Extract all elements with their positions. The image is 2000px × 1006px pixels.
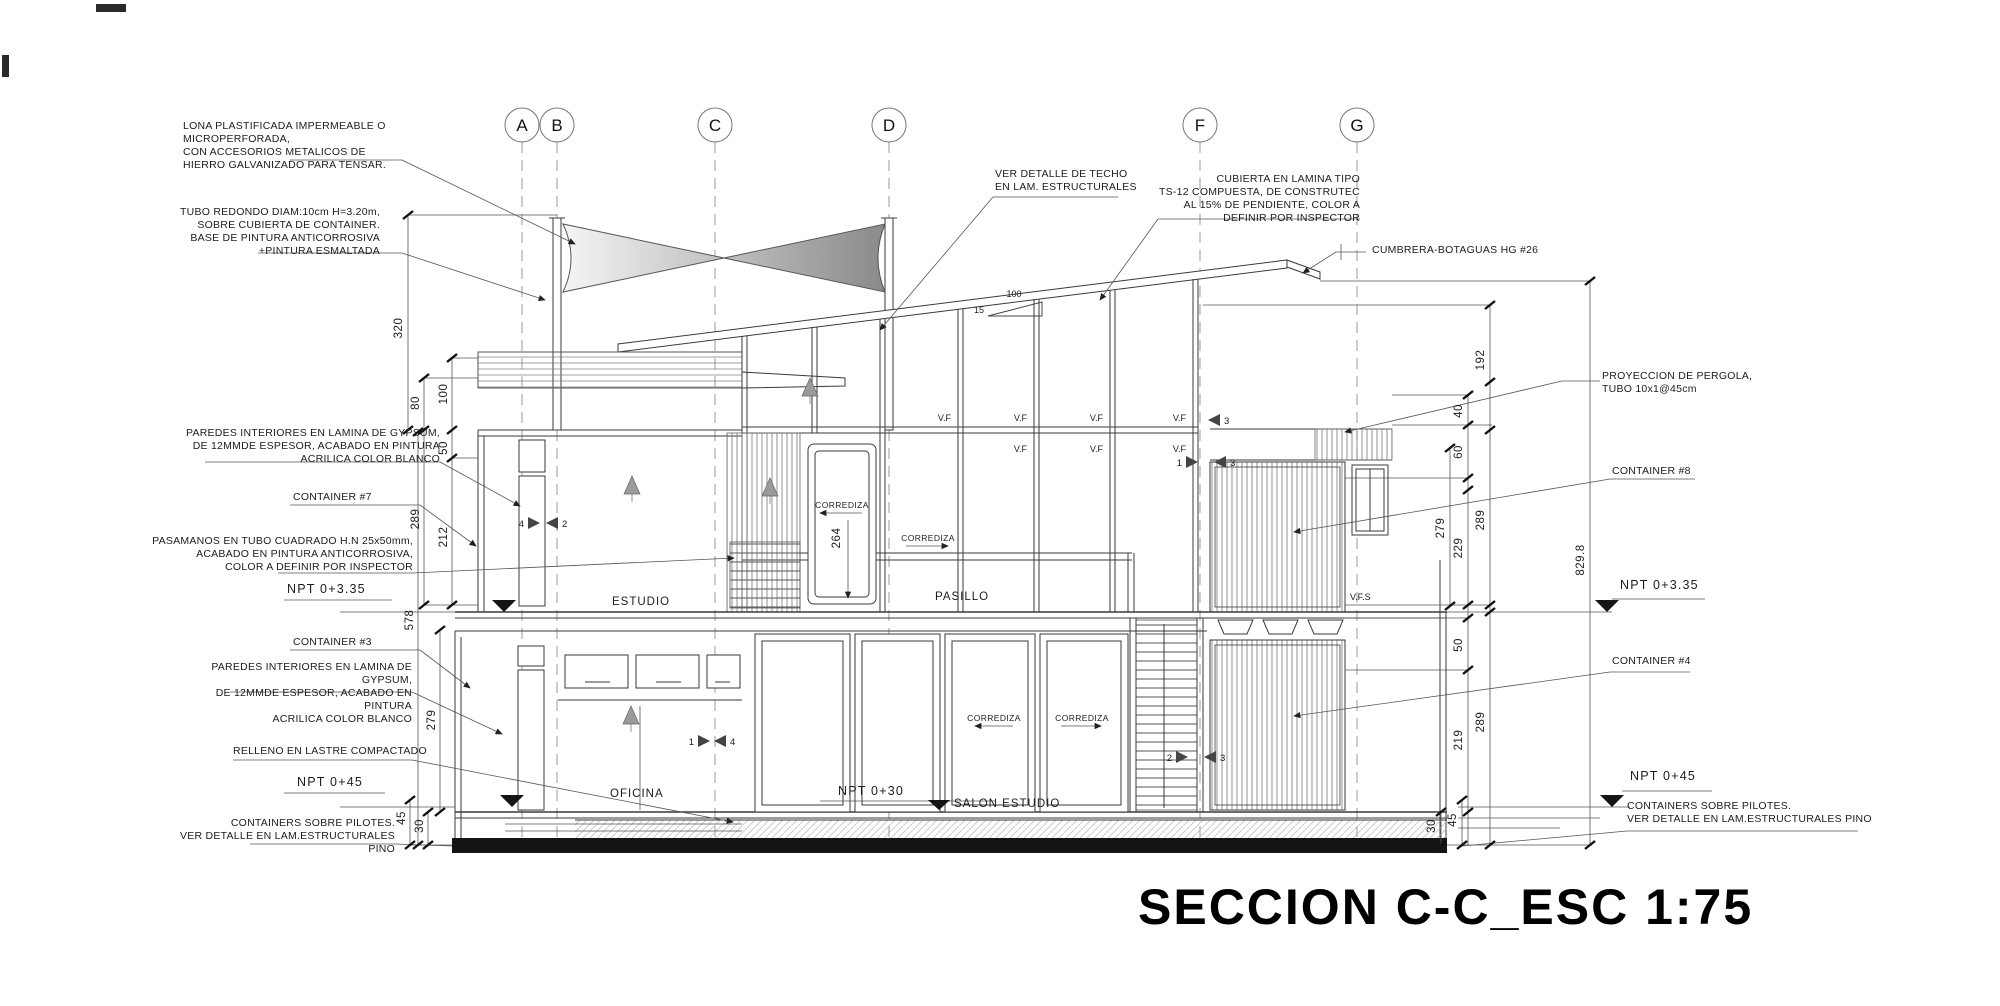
dim-45r: 45 (1447, 813, 1459, 827)
dim-40: 40 (1453, 404, 1465, 418)
note-pilotes-left: CONTAINERS SOBRE PILOTES. VER DETALLE EN… (155, 817, 395, 856)
note-container8: CONTAINER #8 (1612, 465, 1732, 478)
ground (452, 820, 1447, 853)
container7-estudio (478, 430, 742, 612)
level-npt045-right: NPT 0+45 (1630, 770, 1740, 783)
grid-bubble-g: G (1350, 116, 1363, 135)
lower-stairs (1130, 618, 1203, 812)
pergola-hatch (1315, 429, 1392, 460)
dim-80: 80 (410, 396, 422, 410)
note-cubierta: CUBIERTA EN LAMINA TIPO TS-12 COMPUESTA,… (1148, 173, 1360, 225)
marker-label: 3 (1230, 458, 1235, 469)
corrediza-label: CORREDIZA (815, 500, 869, 510)
grid-bubble-f: F (1195, 116, 1205, 135)
dim-279: 279 (426, 710, 438, 731)
scan-mark (2, 55, 9, 77)
marker-label: 2 (1167, 753, 1172, 764)
dim-279r: 279 (1435, 518, 1447, 539)
dim-60: 60 (1453, 445, 1465, 459)
note-cumbrera: CUMBRERA-BOTAGUAS HG #26 (1372, 244, 1592, 257)
upper-stair-and-door (727, 433, 876, 612)
marker-label: 4 (730, 737, 735, 748)
container8-wall (1210, 462, 1345, 612)
room-pasillo: PASILLO (935, 591, 989, 604)
level-npt030: NPT 0+30 (838, 785, 904, 798)
scan-mark (96, 4, 126, 12)
room-oficina: OFICINA (610, 788, 664, 801)
container4-wall (1210, 640, 1345, 810)
corrediza-label: CORREDIZA (967, 713, 1021, 723)
note-paredes-sup: PAREDES INTERIORES EN LAMINA DE GYPSUM, … (160, 427, 440, 466)
dim-289: 289 (410, 509, 422, 530)
grid-bubble-a: A (516, 116, 528, 135)
room-salon-estudio: SALON ESTUDIO (954, 798, 1060, 811)
drawing-title: SECCION C-C_ESC 1:75 (1138, 878, 1753, 936)
corrediza-label: CORREDIZA (901, 533, 955, 543)
note-paredes-inf: PAREDES INTERIORES EN LAMINA DE GYPSUM, … (172, 661, 412, 726)
vfs-label: V.F.S (1350, 592, 1371, 602)
dim-578: 578 (404, 610, 416, 631)
vf-label: V.F (1173, 413, 1187, 423)
dim-50r: 50 (1453, 638, 1465, 652)
level-npt045-left: NPT 0+45 (297, 776, 407, 789)
marker-label: 1 (689, 737, 694, 748)
container7-roof-deck (478, 352, 742, 388)
note-pergola: PROYECCION DE PERGOLA, TUBO 10x1@45cm (1602, 370, 1792, 396)
dim-8298: 829.8 (1575, 544, 1587, 575)
note-pilotes-right: CONTAINERS SOBRE PILOTES. VER DETALLE EN… (1627, 800, 1887, 826)
vf-label: V.F (1173, 444, 1187, 454)
dim-30r: 30 (1426, 819, 1438, 833)
upper-stairs (730, 542, 800, 608)
container3-oficina (455, 631, 742, 838)
slope-run: 100 (1006, 289, 1021, 299)
vf-label: V.F (938, 413, 952, 423)
level-npt335-right: NPT 0+3.35 (1620, 579, 1740, 592)
vf-label: V.F (1090, 444, 1104, 454)
dim-100: 100 (438, 384, 450, 405)
vf-label: V.F (1014, 413, 1028, 423)
note-container7: CONTAINER #7 (293, 491, 413, 504)
marker-label: 1 (1177, 458, 1182, 469)
dim-289r: 289 (1475, 510, 1487, 531)
section-drawing-sheet: A B C D F G (0, 0, 2000, 1006)
dim-212: 212 (438, 527, 450, 548)
note-container3: CONTAINER #3 (293, 636, 413, 649)
marker-label: 4 (519, 519, 524, 530)
dim-192: 192 (1475, 350, 1487, 371)
note-pasamanos: PASAMANOS EN TUBO CUADRADO H.N 25x50mm, … (150, 535, 413, 574)
note-tubo: TUBO REDONDO DIAM:10cm H=3.20m, SOBRE CU… (130, 206, 380, 258)
dim-30: 30 (414, 819, 426, 833)
level-npt335-left: NPT 0+3.35 (287, 583, 407, 596)
dim-229: 229 (1453, 538, 1465, 559)
slope-rise: 15 (974, 305, 984, 315)
room-estudio: ESTUDIO (612, 596, 670, 609)
marker-label: 2 (562, 519, 567, 530)
dim-45: 45 (396, 811, 408, 825)
note-relleno: RELLENO EN LASTRE COMPACTADO (233, 745, 433, 758)
grid-bubble-c: C (709, 116, 721, 135)
corrediza-label: CORREDIZA (1055, 713, 1109, 723)
note-ver-detalle-techo: VER DETALLE DE TECHO EN LAM. ESTRUCTURAL… (995, 168, 1165, 194)
dim-289r2: 289 (1475, 712, 1487, 733)
vf-label: V.F (1014, 444, 1028, 454)
grid-bubble-b: B (551, 116, 562, 135)
vf-label: V.F (1090, 413, 1104, 423)
note-container4: CONTAINER #4 (1612, 655, 1732, 668)
fill-hatch (575, 820, 1447, 838)
dim-219: 219 (1453, 730, 1465, 751)
marker-label: 3 (1224, 416, 1229, 427)
lower-sliding-doors (755, 634, 1128, 812)
dim-320: 320 (393, 318, 405, 339)
dim-264: 264 (831, 528, 843, 549)
note-lona: LONA PLASTIFICADA IMPERMEABLE O MICROPER… (183, 120, 493, 172)
ground-beam (452, 838, 1447, 853)
grid-bubble-d: D (883, 116, 895, 135)
grid-bubbles: A B C D F G (505, 108, 1374, 142)
marker-label: 3 (1220, 753, 1225, 764)
